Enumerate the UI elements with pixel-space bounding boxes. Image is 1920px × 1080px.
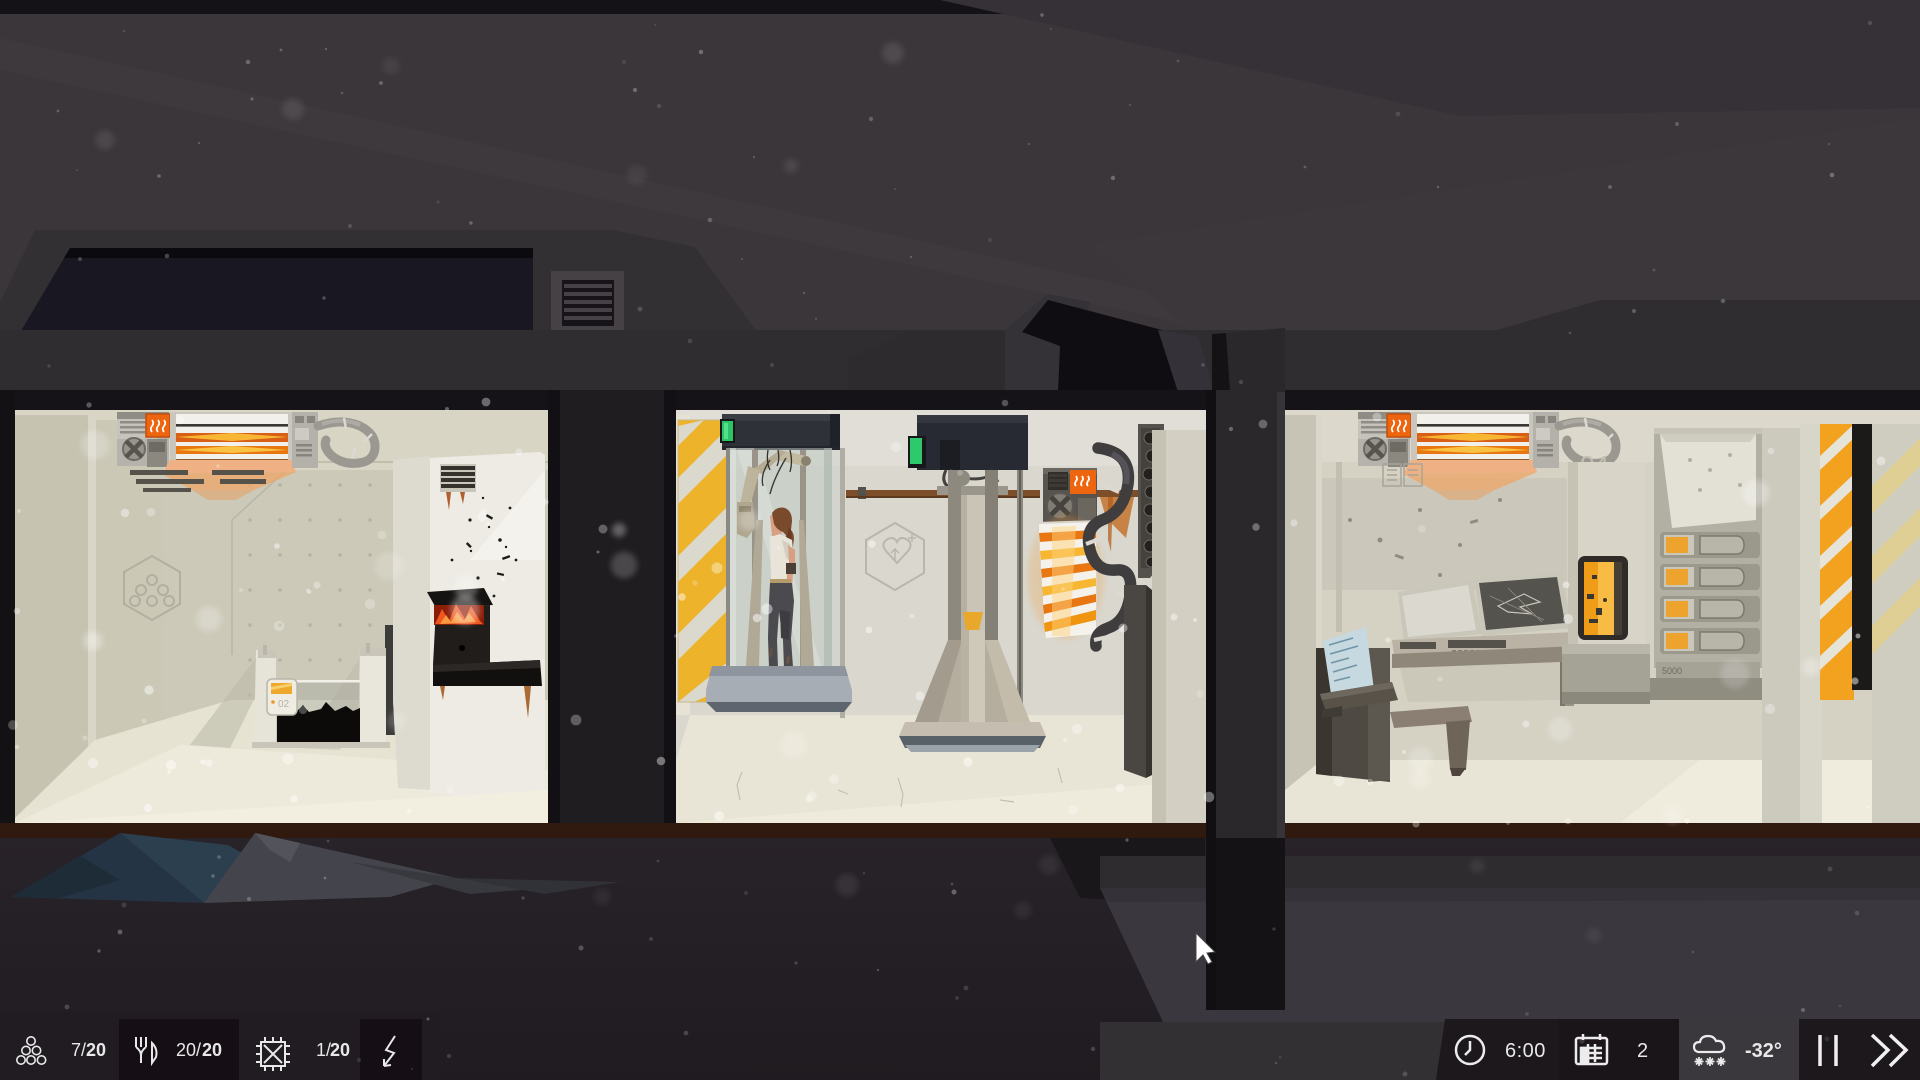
svg-text:20: 20: [202, 1040, 222, 1060]
svg-text:20/: 20/: [176, 1040, 201, 1060]
svg-text:5000: 5000: [1662, 666, 1682, 676]
svg-text:20: 20: [330, 1040, 350, 1060]
svg-text:7/: 7/: [71, 1040, 86, 1060]
svg-text:2: 2: [1637, 1040, 1648, 1062]
svg-text:6:00: 6:00: [1505, 1040, 1546, 1062]
svg-text:1/: 1/: [316, 1040, 331, 1060]
svg-text:02: 02: [278, 699, 290, 710]
svg-text:-32°: -32°: [1745, 1040, 1782, 1062]
svg-text:20: 20: [86, 1040, 106, 1060]
